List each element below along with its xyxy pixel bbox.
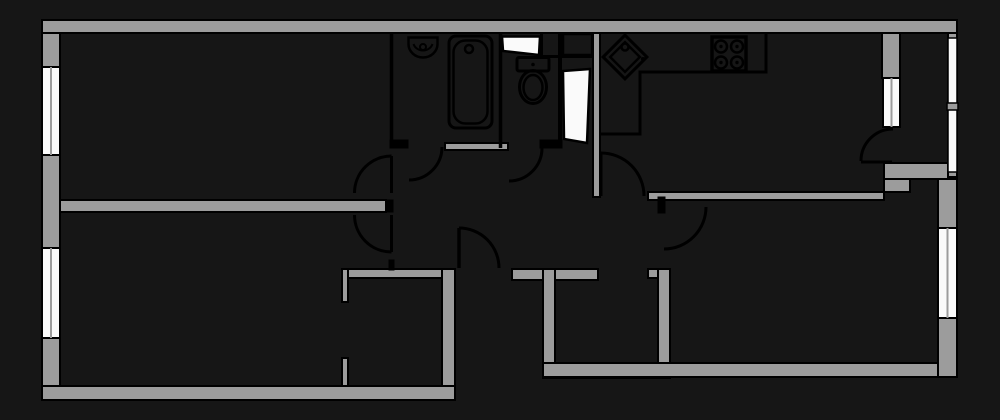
kitchen-sink-drain-dot [641,57,645,61]
floor-plan [0,0,1000,420]
closet1-right-wall [442,269,455,386]
stove-burner-dot-2 [735,45,738,48]
stove-burner-dot-1 [719,45,722,48]
hall-north-wall-mid [445,143,508,150]
niche-door-leaf [563,69,590,143]
closet1-top-wall [342,269,455,278]
wc-top-door-leaf [502,37,540,56]
living-bedroom-divider-wall [60,200,386,212]
stove-burner-dot-3 [719,61,722,64]
closet2-right-wall [658,269,670,378]
bedroom1-door-stub [389,260,394,270]
stove-burner-dot-4 [735,61,738,64]
closet1-left-wall-lower [342,358,348,386]
floor-plan-svg [0,0,1000,420]
balcony-step-wall [884,179,910,192]
bedroom2-door-jamb [658,197,665,213]
closet2-left-wall [543,269,555,378]
kitchen-balcony-wall-stub [882,33,900,78]
bathroom-door-jamb [390,140,408,148]
closet1-left-wall-upper [342,269,348,302]
balcony-glazing-divider [947,103,958,110]
bottom-right-exterior-wall [543,363,957,377]
top-exterior-wall [42,20,957,33]
closet2-door-stub [648,269,658,278]
bottom-left-exterior-wall [42,386,455,400]
balcony-bottom-wall [884,163,957,179]
divider-wall-end-cap [386,200,393,212]
kitchen-west-wall [593,33,600,197]
hall-south-wall [648,192,884,200]
toilet-tank-button [531,63,535,67]
